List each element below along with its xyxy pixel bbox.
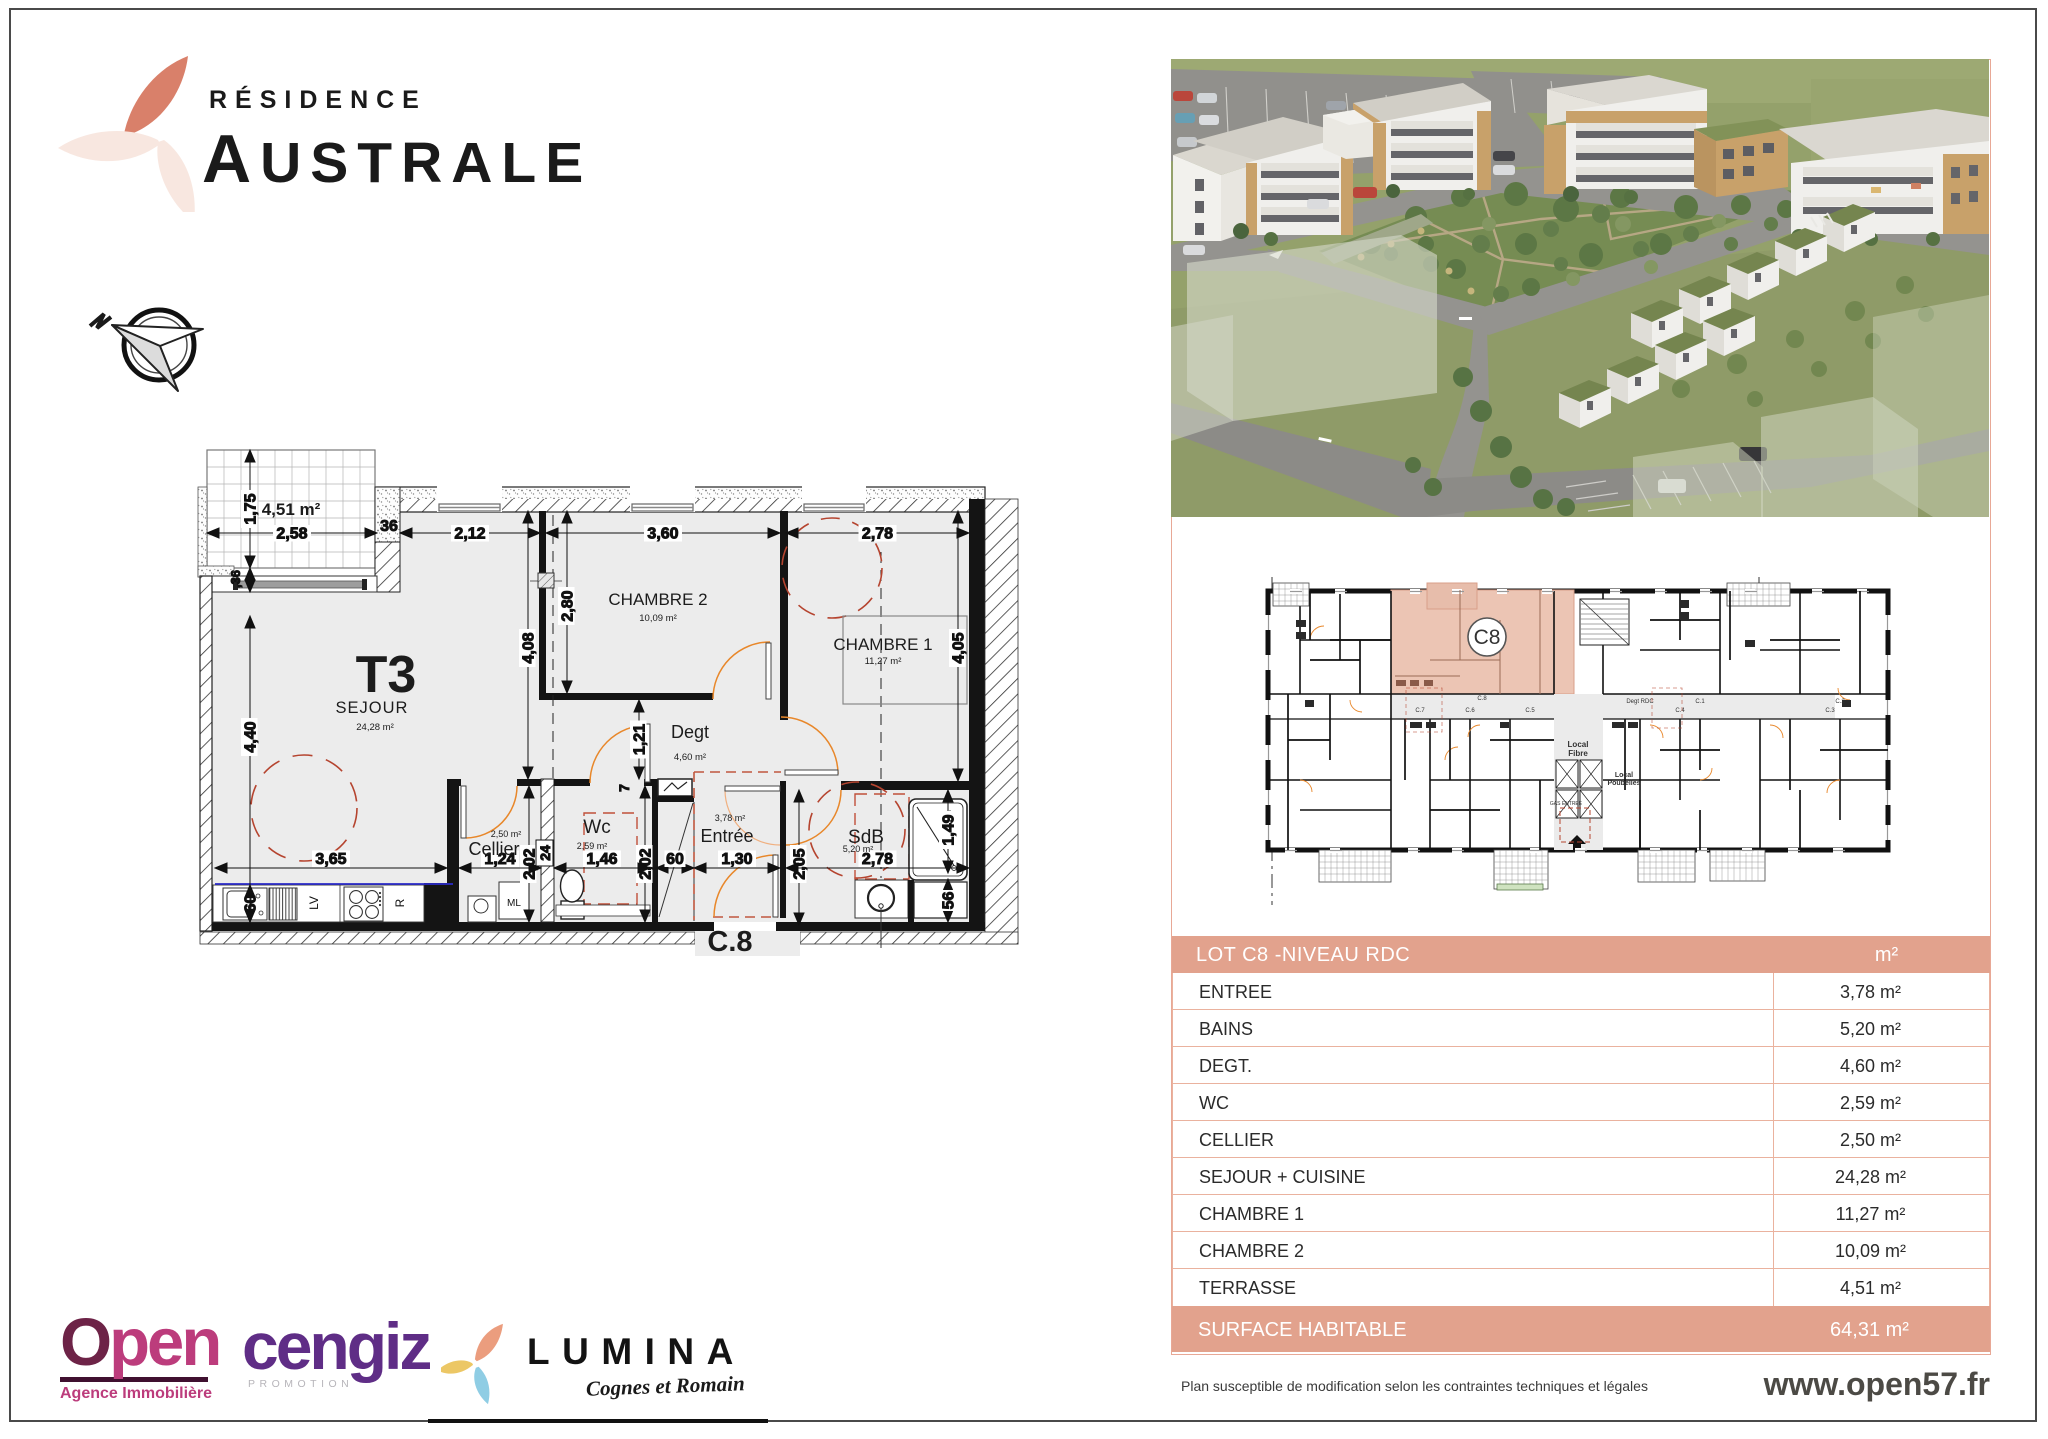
svg-text:Wc: Wc — [583, 817, 610, 838]
svg-text:24: 24 — [537, 845, 553, 861]
svg-text:1,46: 1,46 — [586, 851, 617, 868]
svg-text:60: 60 — [666, 851, 684, 868]
svg-text:T3: T3 — [356, 646, 417, 704]
svg-text:4,40: 4,40 — [243, 721, 260, 752]
svg-text:CHAMBRE 1: CHAMBRE 1 — [833, 635, 932, 654]
svg-text:56: 56 — [941, 892, 958, 910]
svg-text:C8: C8 — [1474, 626, 1501, 649]
svg-text:4,05: 4,05 — [951, 632, 968, 663]
svg-text:3,60: 3,60 — [647, 526, 678, 543]
svg-text:4,08: 4,08 — [521, 632, 538, 663]
svg-text:3,65: 3,65 — [315, 851, 346, 868]
svg-text:24,28 m²: 24,28 m² — [356, 722, 394, 733]
svg-text:36: 36 — [380, 518, 398, 535]
svg-text:CHAMBRE 2: CHAMBRE 2 — [608, 590, 707, 609]
svg-text:4,51 m²: 4,51 m² — [262, 500, 321, 519]
svg-text:11,27 m²: 11,27 m² — [865, 656, 902, 667]
svg-text:2,59 m²: 2,59 m² — [577, 841, 608, 851]
svg-text:2,58: 2,58 — [276, 526, 307, 543]
svg-text:2,12: 2,12 — [454, 526, 485, 543]
svg-text:5,20 m²: 5,20 m² — [843, 844, 874, 854]
svg-text:2,80: 2,80 — [560, 590, 577, 621]
svg-text:7: 7 — [616, 784, 632, 792]
svg-text:10,09 m²: 10,09 m² — [639, 613, 677, 624]
svg-text:C.4: C.4 — [1675, 708, 1685, 714]
svg-text:Degt RDC: Degt RDC — [1626, 699, 1654, 705]
svg-text:SEJOUR: SEJOUR — [336, 699, 409, 717]
svg-text:C.3: C.3 — [1825, 708, 1835, 714]
svg-text:LV: LV — [307, 896, 321, 910]
svg-text:2,05: 2,05 — [792, 848, 809, 879]
svg-text:C.1: C.1 — [1695, 699, 1705, 705]
svg-text:R: R — [393, 898, 407, 907]
svg-text:ML: ML — [507, 898, 521, 909]
svg-text:60: 60 — [243, 895, 260, 913]
svg-text:Local: Local — [1615, 772, 1633, 779]
svg-text:GAS ENTREE: GAS ENTREE — [1550, 801, 1583, 807]
svg-text:Poubelles: Poubelles — [1607, 780, 1640, 787]
svg-text:1,30: 1,30 — [721, 851, 752, 868]
svg-text:4,60 m²: 4,60 m² — [674, 752, 706, 763]
svg-text:Entrée: Entrée — [700, 826, 753, 846]
svg-text:,36: ,36 — [228, 570, 243, 588]
svg-text:Degt: Degt — [671, 722, 709, 742]
svg-text:C.8: C.8 — [707, 926, 752, 958]
svg-text:C.5: C.5 — [1525, 708, 1535, 714]
svg-text:2,78: 2,78 — [862, 526, 893, 543]
svg-text:C.6: C.6 — [1465, 708, 1475, 714]
svg-text:1,49: 1,49 — [941, 814, 958, 845]
svg-text:Fibre: Fibre — [1568, 749, 1588, 758]
svg-text:3,78 m²: 3,78 m² — [715, 813, 746, 823]
svg-text:C.7: C.7 — [1415, 708, 1425, 714]
svg-text:2,50 m²: 2,50 m² — [491, 829, 522, 839]
svg-text:Local: Local — [1568, 740, 1589, 749]
svg-text:C.8: C.8 — [1477, 696, 1487, 702]
svg-text:1,75: 1,75 — [243, 493, 260, 524]
svg-text:C.2: C.2 — [1835, 699, 1845, 705]
svg-text:1,21: 1,21 — [632, 724, 649, 755]
svg-text:Cellier: Cellier — [468, 839, 519, 859]
